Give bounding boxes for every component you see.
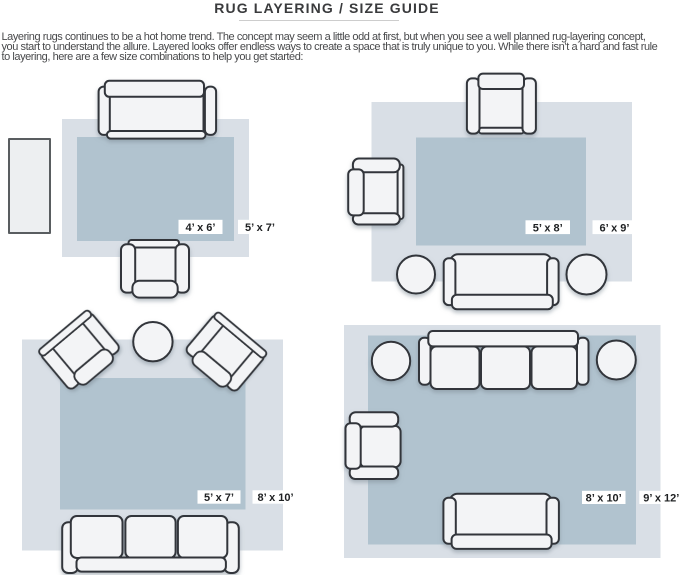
svg-text:5’ x 8’: 5’ x 8’ bbox=[533, 222, 563, 234]
svg-text:8’ x 10’: 8’ x 10’ bbox=[257, 492, 293, 504]
svg-text:8’ x 10’: 8’ x 10’ bbox=[586, 492, 622, 504]
svg-text:4’ x 6’: 4’ x 6’ bbox=[186, 222, 216, 234]
svg-text:5’ x 7’: 5’ x 7’ bbox=[204, 492, 234, 504]
svg-text:9’ x 12’: 9’ x 12’ bbox=[643, 492, 679, 504]
svg-text:6’ x 9’: 6’ x 9’ bbox=[600, 222, 630, 234]
svg-text:5’ x 7’: 5’ x 7’ bbox=[245, 222, 275, 234]
